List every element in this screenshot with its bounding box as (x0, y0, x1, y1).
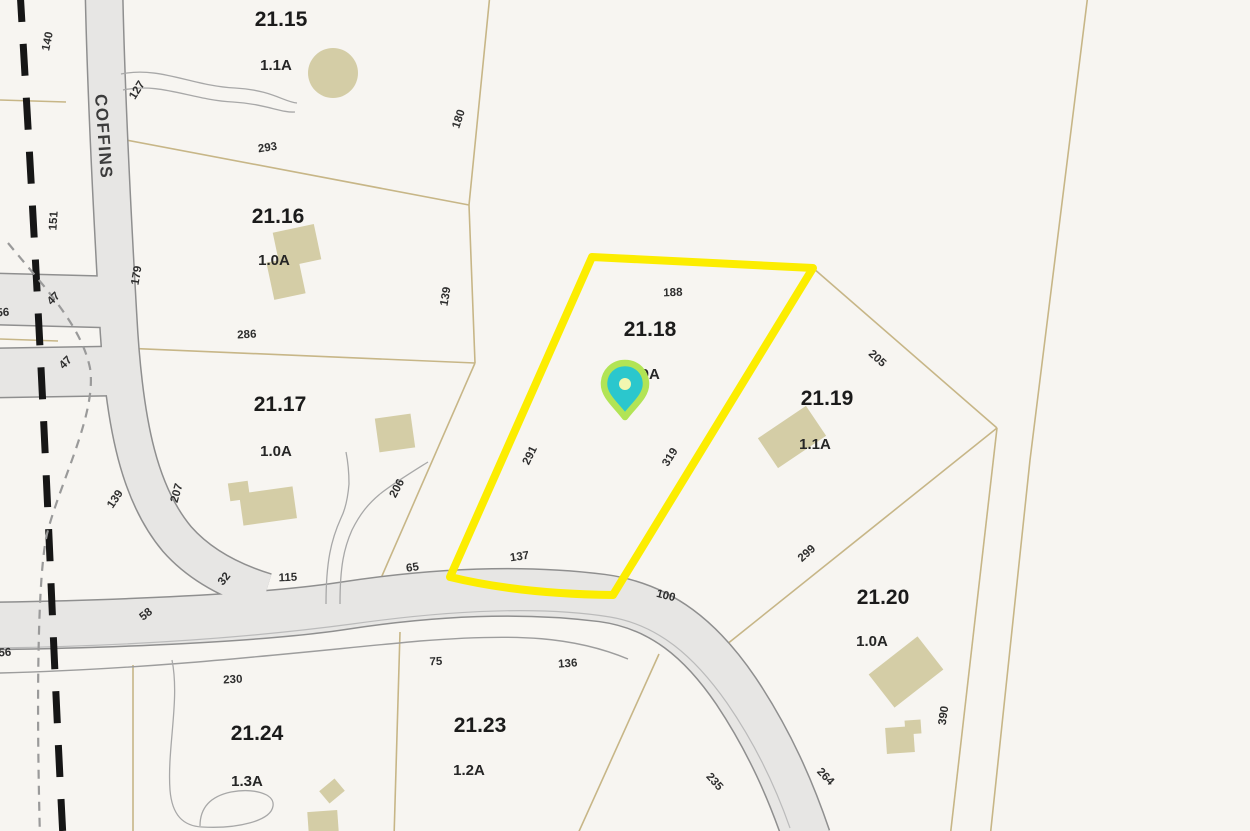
parcel-number-21.17: 21.17 (254, 393, 307, 416)
parcel-number-21.20: 21.20 (857, 586, 910, 609)
parcel-acreage-21.24: 1.3A (231, 773, 263, 790)
building-footprint (375, 414, 415, 453)
building-footprint (905, 719, 922, 734)
dimension-label: 230 (223, 674, 243, 687)
road-surface-stub-lower[interactable] (0, 371, 114, 373)
parcel-acreage-21.23: 1.2A (453, 762, 485, 779)
parcel-acreage-21.20: 1.0A (856, 633, 888, 650)
location-pin-center (619, 378, 631, 390)
parcel-number-21.19: 21.19 (801, 387, 854, 410)
parcel-map[interactable]: 21.151.1A21.161.0A21.171.0A21.181.0A21.1… (0, 0, 1250, 831)
building-footprint (307, 810, 338, 831)
building-footprint (308, 48, 358, 98)
parcel-acreage-21.15: 1.1A (260, 57, 292, 74)
dimension-label: 188 (663, 287, 683, 300)
parcel-number-21.16: 21.16 (252, 205, 305, 228)
dimension-label: 286 (237, 329, 257, 342)
dimension-label: 56 (0, 307, 10, 320)
parcel-number-21.23: 21.23 (454, 714, 507, 737)
dimension-label: 65 (405, 561, 420, 575)
dimension-label: 75 (429, 656, 443, 668)
dimension-label: 56 (0, 647, 12, 660)
parcel-number-21.15: 21.15 (255, 8, 308, 31)
building-footprint (228, 481, 250, 502)
dimension-label: 151 (47, 210, 60, 231)
dimension-label: 136 (558, 657, 578, 670)
parcel-number-21.18: 21.18 (624, 318, 677, 341)
dimension-label: 115 (278, 572, 298, 585)
map-canvas[interactable]: 21.151.1A21.161.0A21.171.0A21.181.0A21.1… (0, 0, 1250, 831)
parcel-acreage-21.19: 1.1A (799, 436, 831, 453)
parcel-acreage-21.16: 1.0A (258, 252, 290, 269)
parcel-acreage-21.17: 1.0A (260, 443, 292, 460)
parcel-number-21.24: 21.24 (231, 722, 284, 745)
